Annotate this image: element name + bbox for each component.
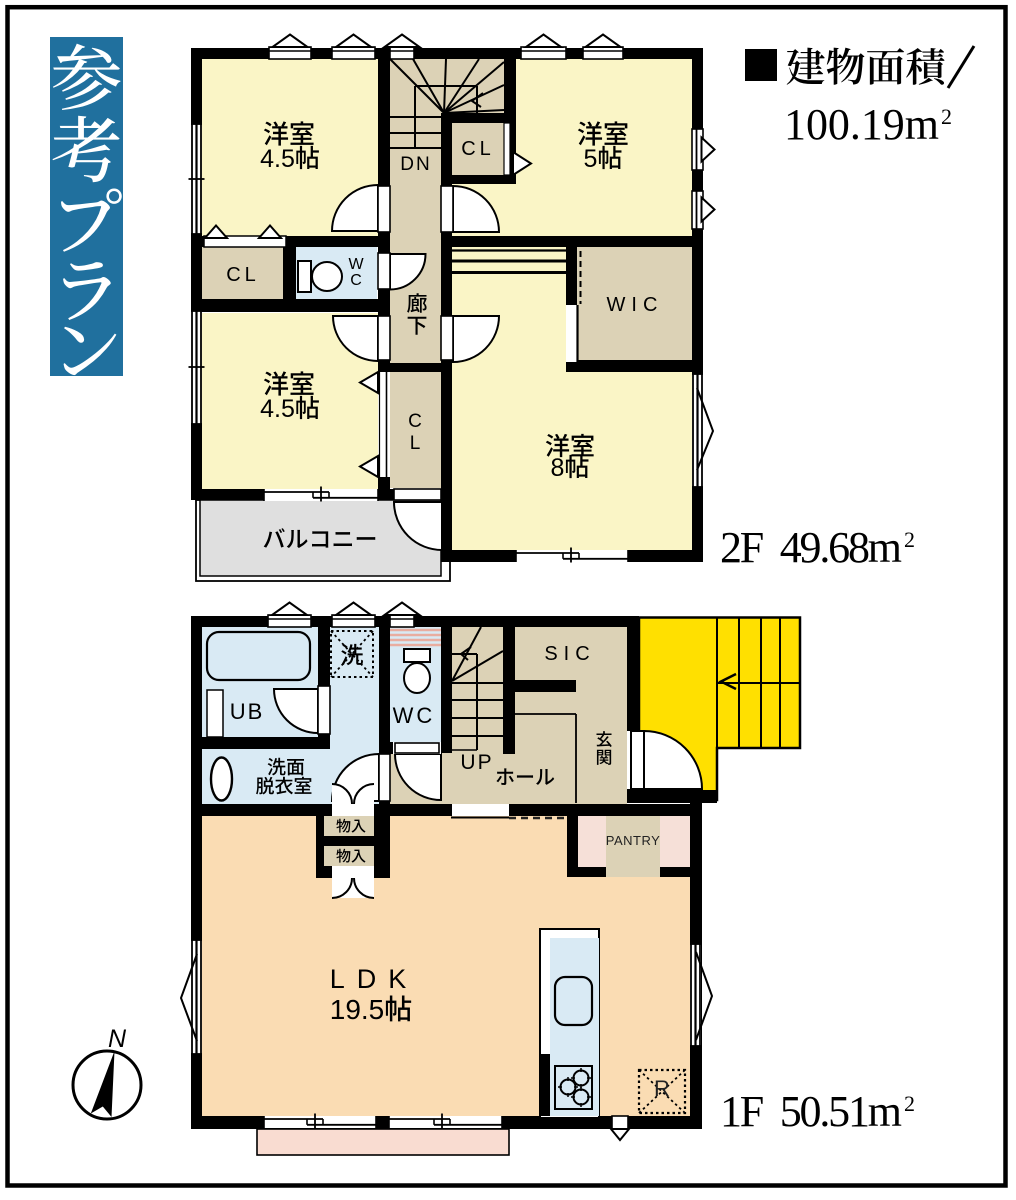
svg-text:1F 50.51m: 1F 50.51m bbox=[720, 1087, 902, 1136]
svg-text:CL: CL bbox=[226, 264, 260, 286]
svg-text:C: C bbox=[408, 411, 422, 432]
svg-text:W: W bbox=[348, 256, 364, 273]
svg-text:2: 2 bbox=[904, 527, 915, 552]
svg-text:WC: WC bbox=[393, 703, 436, 728]
svg-text:4.5: 4.5 bbox=[260, 145, 295, 173]
svg-text:UB: UB bbox=[230, 699, 265, 724]
svg-text:2F 49.68m: 2F 49.68m bbox=[720, 523, 902, 572]
svg-text:WIC: WIC bbox=[607, 294, 664, 316]
svg-text:PANTRY: PANTRY bbox=[606, 833, 661, 848]
svg-text:5: 5 bbox=[584, 145, 598, 173]
svg-text:2: 2 bbox=[904, 1091, 915, 1116]
svg-text:SIC: SIC bbox=[544, 643, 595, 665]
svg-text:100.19m: 100.19m bbox=[784, 100, 939, 149]
svg-text:C: C bbox=[350, 272, 362, 289]
svg-text:4.5: 4.5 bbox=[260, 395, 295, 423]
svg-text:8: 8 bbox=[551, 454, 565, 482]
svg-text:R: R bbox=[654, 1076, 670, 1101]
svg-text:19.5: 19.5 bbox=[330, 994, 385, 1025]
svg-text:CL: CL bbox=[461, 138, 495, 160]
svg-text:LDK: LDK bbox=[330, 964, 419, 994]
svg-text:UP: UP bbox=[460, 751, 493, 774]
svg-text:N: N bbox=[108, 1025, 127, 1053]
svg-text:2: 2 bbox=[941, 104, 952, 129]
svg-text:DN: DN bbox=[400, 154, 431, 175]
svg-text:L: L bbox=[410, 433, 421, 454]
